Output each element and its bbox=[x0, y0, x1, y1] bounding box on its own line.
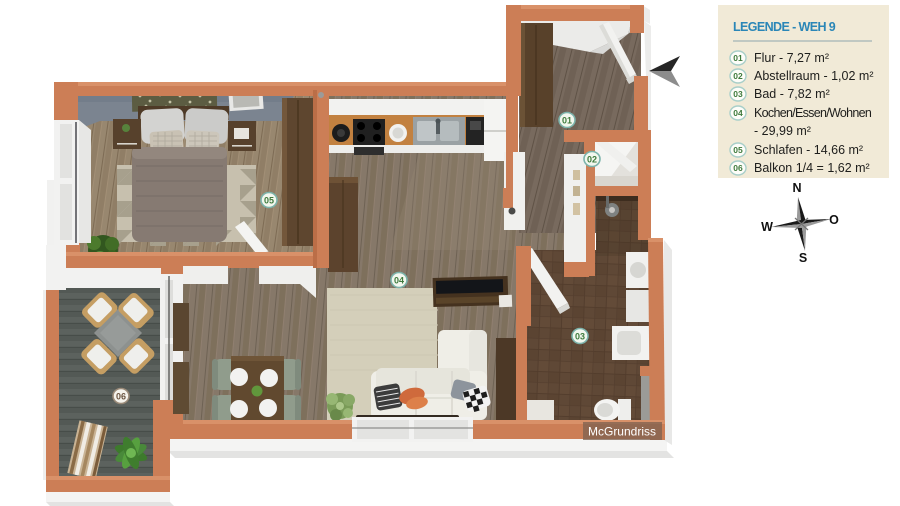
svg-text:05: 05 bbox=[733, 145, 743, 155]
svg-text:06: 06 bbox=[116, 392, 126, 402]
svg-text:W: W bbox=[761, 220, 773, 234]
svg-text:Abstellraum - 1,02 m²: Abstellraum - 1,02 m² bbox=[754, 69, 873, 83]
svg-text:O: O bbox=[829, 213, 839, 227]
svg-text:Flur - 7,27 m²: Flur - 7,27 m² bbox=[754, 51, 829, 65]
svg-text:01: 01 bbox=[562, 116, 572, 126]
svg-text:04: 04 bbox=[394, 276, 404, 286]
svg-text:Balkon 1/4 = 1,62 m²: Balkon 1/4 = 1,62 m² bbox=[754, 161, 870, 175]
svg-text:03: 03 bbox=[575, 332, 585, 342]
svg-text:N: N bbox=[792, 181, 801, 195]
svg-text:02: 02 bbox=[587, 155, 597, 165]
svg-text:04: 04 bbox=[733, 108, 743, 118]
svg-text:03: 03 bbox=[733, 89, 743, 99]
svg-text:02: 02 bbox=[733, 71, 743, 81]
svg-text:S: S bbox=[799, 251, 807, 265]
svg-text:Bad - 7,82 m²: Bad - 7,82 m² bbox=[754, 87, 830, 101]
svg-text:McGrundriss: McGrundriss bbox=[588, 425, 656, 439]
svg-text:01: 01 bbox=[733, 53, 743, 63]
svg-text:05: 05 bbox=[264, 196, 274, 206]
svg-text:Kochen/Essen/Wohnen: Kochen/Essen/Wohnen bbox=[754, 106, 872, 120]
svg-text:LEGENDE - WEH 9: LEGENDE - WEH 9 bbox=[733, 20, 836, 34]
svg-text:Schlafen - 14,66 m²: Schlafen - 14,66 m² bbox=[754, 143, 863, 157]
svg-text:- 29,99 m²: - 29,99 m² bbox=[754, 124, 811, 138]
svg-text:06: 06 bbox=[733, 163, 743, 173]
